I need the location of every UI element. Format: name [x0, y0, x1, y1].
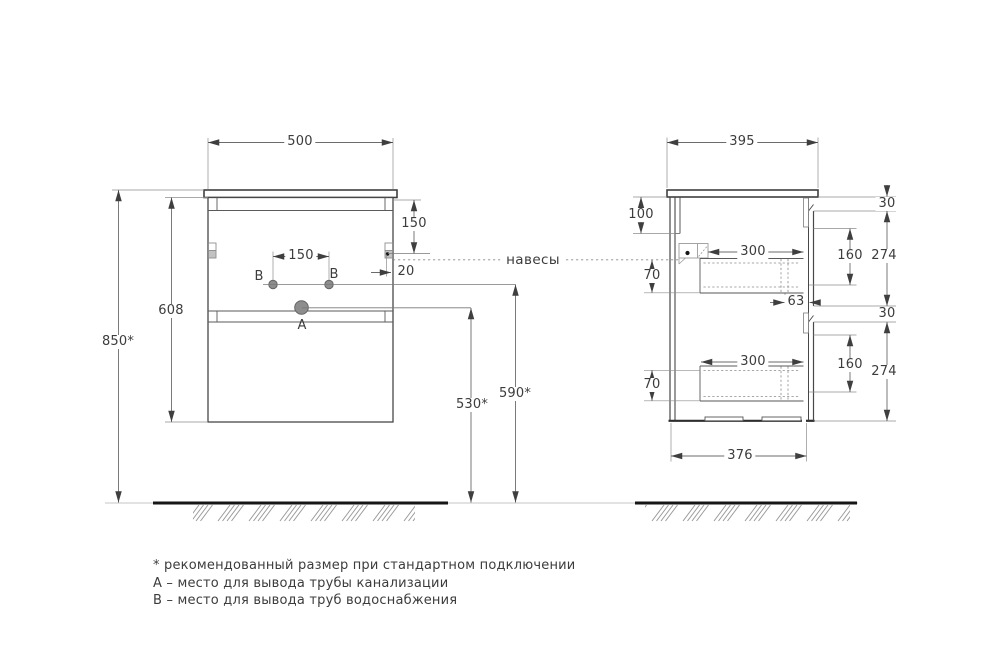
front-view	[204, 190, 679, 422]
side-hanger-bracket	[679, 244, 708, 265]
dim-front-width: 500	[284, 135, 315, 149]
note-drain-point: А – место для вывода трубы канализации	[153, 577, 448, 591]
dim-side-bottom-depth: 376	[724, 449, 755, 463]
side-drawer-bottom	[700, 366, 804, 401]
note-water-point: В – место для вывода труб водоснабжения	[153, 594, 457, 608]
dim-back-offset: 63	[785, 295, 808, 309]
dim-hanger-from-top: 150	[398, 217, 429, 231]
front-right-hanger	[385, 243, 393, 258]
dim-drawer-drop-bottom: 70	[641, 378, 664, 392]
ground	[105, 503, 858, 522]
dim-drawer-drop-top: 70	[641, 269, 664, 283]
dim-water-outlet-height: 590*	[496, 387, 534, 401]
side-drawer-top	[700, 259, 804, 294]
dim-drain-outlet-height: 530*	[453, 398, 491, 412]
point-label-drain: A	[298, 319, 307, 333]
dim-front-panel-height-bottom: 274	[868, 365, 899, 379]
side-foot-notch-right	[762, 417, 801, 421]
dim-front-panel-height-top: 274	[868, 249, 899, 263]
front-countertop	[204, 190, 397, 198]
technical-drawing-page: 500 608 850* 150 20 150 B B A 590* 530* …	[0, 0, 1000, 666]
dim-front-gap-bottom: 30	[876, 307, 899, 321]
side-foot-notch-left	[705, 417, 743, 421]
point-label-water-right: B	[330, 268, 339, 282]
dim-front-cabinet-height: 608	[155, 304, 186, 318]
dim-drawer-side-height-bottom: 160	[834, 358, 865, 372]
dim-drawer-depth-bottom: 300	[737, 355, 768, 369]
front-left-hanger	[209, 243, 217, 258]
dim-front-height-above-floor: 850*	[99, 335, 137, 349]
note-recommended-size: * рекомендованный размер при стандартном…	[153, 559, 575, 573]
dim-drawer-side-height-top: 160	[834, 249, 865, 263]
dim-side-depth: 395	[726, 135, 757, 149]
dim-front-gap-top: 30	[876, 197, 899, 211]
dim-back-panel-top: 100	[625, 208, 656, 222]
dim-water-outlets-spacing: 150	[285, 249, 316, 263]
dim-drawer-depth-top: 300	[737, 245, 768, 259]
hangers-callout: навесы	[501, 252, 565, 268]
dim-hanger-from-side: 20	[395, 265, 418, 279]
ground-hatching-left	[193, 505, 415, 523]
ground-hatching-right	[645, 505, 850, 523]
point-label-water-left: B	[255, 270, 264, 284]
side-countertop	[667, 190, 818, 197]
